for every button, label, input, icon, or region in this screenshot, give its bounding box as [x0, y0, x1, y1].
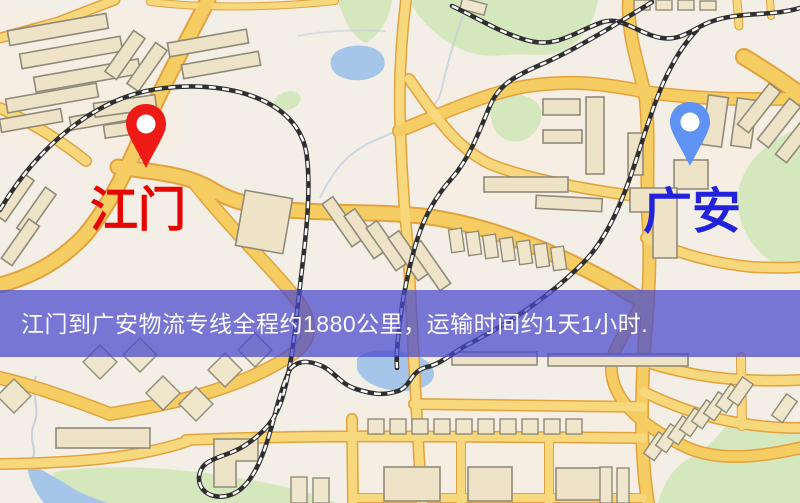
route-info-text: 江门到广安物流专线全程约1880公里，运输时间约1天1小时.: [0, 305, 648, 343]
route-info-banner: 江门到广安物流专线全程约1880公里，运输时间约1天1小时.: [0, 290, 800, 357]
map-canvas: [0, 0, 800, 503]
destination-label: 广安: [643, 172, 741, 243]
origin-pin-icon: [124, 102, 168, 172]
destination-pin-icon: [668, 100, 712, 170]
origin-label: 江门: [90, 170, 186, 240]
park-top-left-small: [338, 0, 392, 43]
lake-upper: [331, 46, 385, 81]
logistics-route-map: 江门到广安物流专线全程约1880公里，运输时间约1天1小时. 江门 广安: [0, 0, 800, 503]
